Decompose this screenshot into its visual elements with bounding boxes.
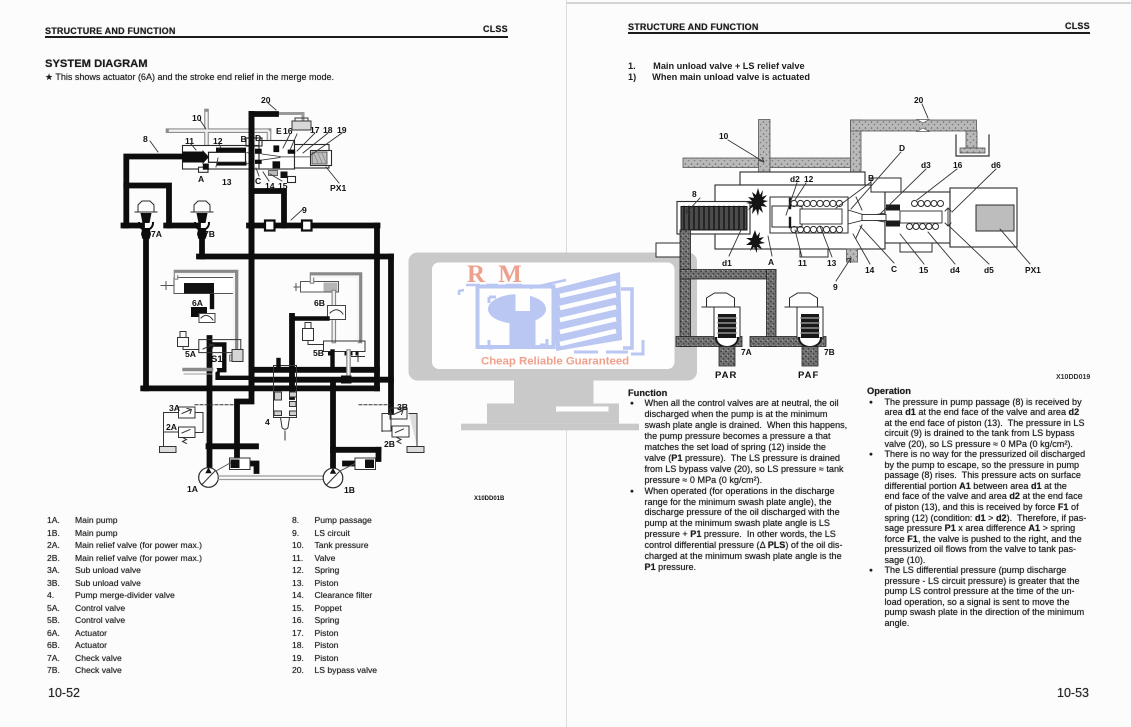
svg-text:12: 12	[804, 174, 814, 184]
svg-text:11: 11	[798, 258, 807, 268]
svg-text:A: A	[768, 257, 774, 267]
svg-text:d2: d2	[790, 174, 800, 184]
svg-text:B: B	[868, 173, 874, 183]
svg-text:C: C	[891, 264, 897, 274]
svg-text:d4: d4	[950, 265, 960, 275]
svg-text:d3: d3	[921, 160, 931, 170]
svg-text:16: 16	[953, 160, 963, 170]
svg-text:20: 20	[914, 95, 924, 105]
svg-text:PAR: PAR	[715, 370, 737, 381]
svg-text:8: 8	[692, 189, 697, 199]
svg-text:9: 9	[833, 282, 838, 292]
svg-text:10: 10	[719, 131, 729, 141]
svg-text:13: 13	[827, 258, 837, 268]
svg-text:7A: 7A	[741, 347, 752, 357]
svg-text:d1: d1	[722, 258, 732, 268]
svg-text:D: D	[899, 143, 905, 153]
svg-text:PX1: PX1	[1025, 265, 1041, 275]
svg-text:7B: 7B	[824, 347, 835, 357]
svg-text:d6: d6	[991, 160, 1001, 170]
svg-text:14: 14	[865, 265, 875, 275]
svg-text:d5: d5	[984, 265, 994, 275]
svg-text:15: 15	[919, 265, 929, 275]
svg-text:PAF: PAF	[798, 370, 819, 381]
